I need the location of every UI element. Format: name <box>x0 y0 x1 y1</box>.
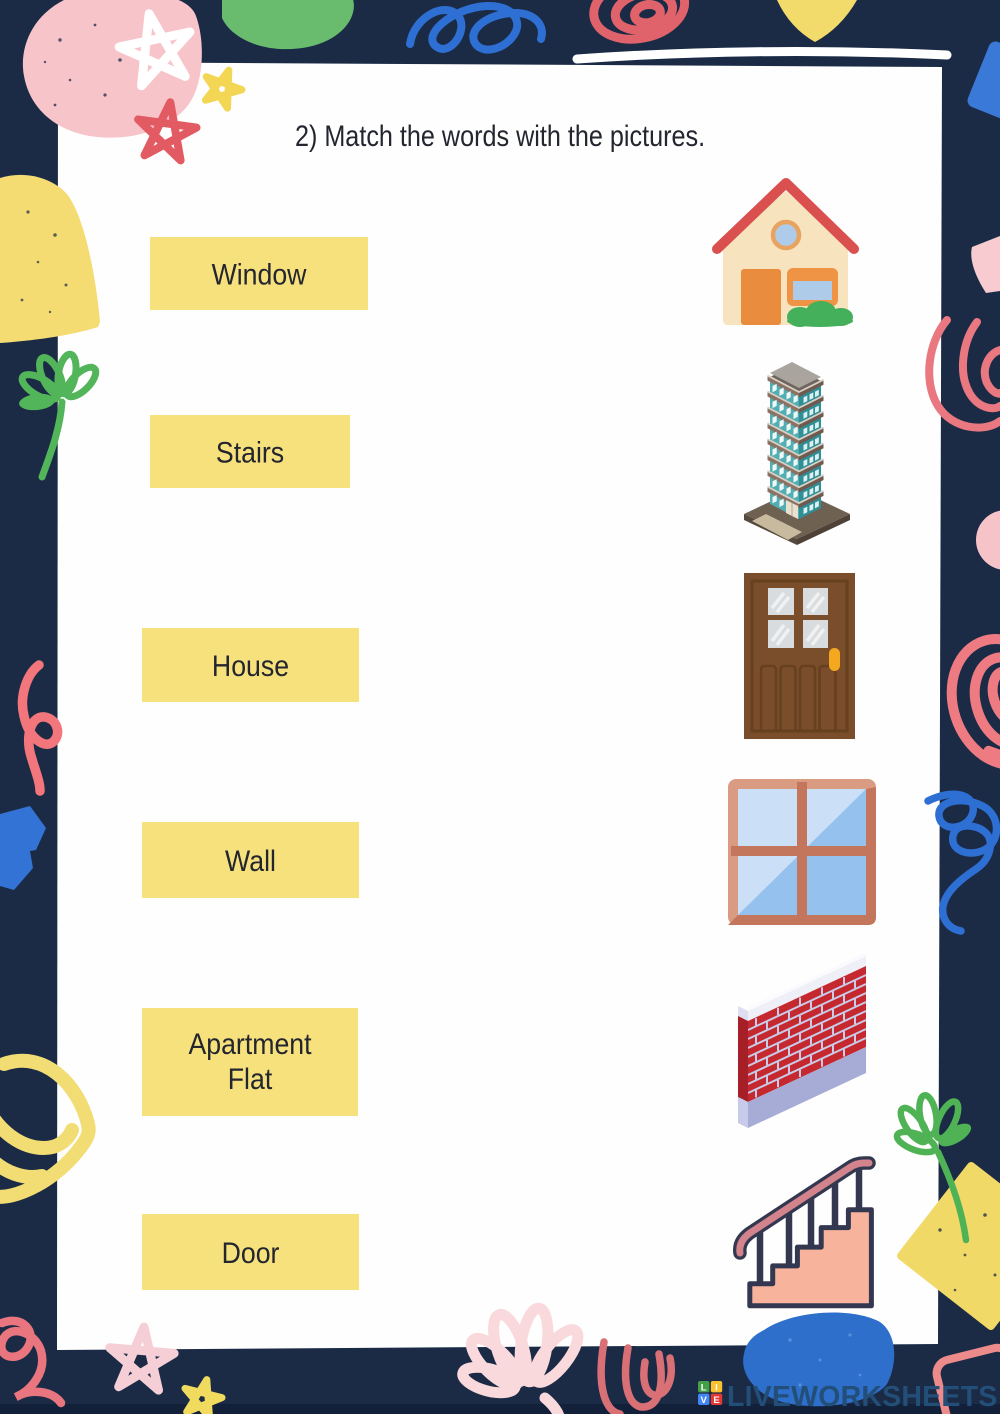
svg-text:L: L <box>701 1382 707 1393</box>
svg-text:Window: Window <box>212 258 307 292</box>
svg-text:Wall: Wall <box>225 845 276 879</box>
svg-text:Stairs: Stairs <box>216 436 284 470</box>
svg-text:V: V <box>701 1395 708 1406</box>
svg-text:I: I <box>715 1382 718 1393</box>
svg-text:House: House <box>212 650 289 684</box>
svg-text:LIVEWORKSHEETS: LIVEWORKSHEETS <box>727 1381 997 1413</box>
svg-text:E: E <box>713 1395 719 1406</box>
svg-text:Door: Door <box>222 1237 280 1271</box>
svg-text:Apartment: Apartment <box>188 1028 311 1062</box>
svg-text:Flat: Flat <box>228 1063 273 1097</box>
svg-text:2) Match the words with the pi: 2) Match the words with the pictures. <box>295 119 705 153</box>
